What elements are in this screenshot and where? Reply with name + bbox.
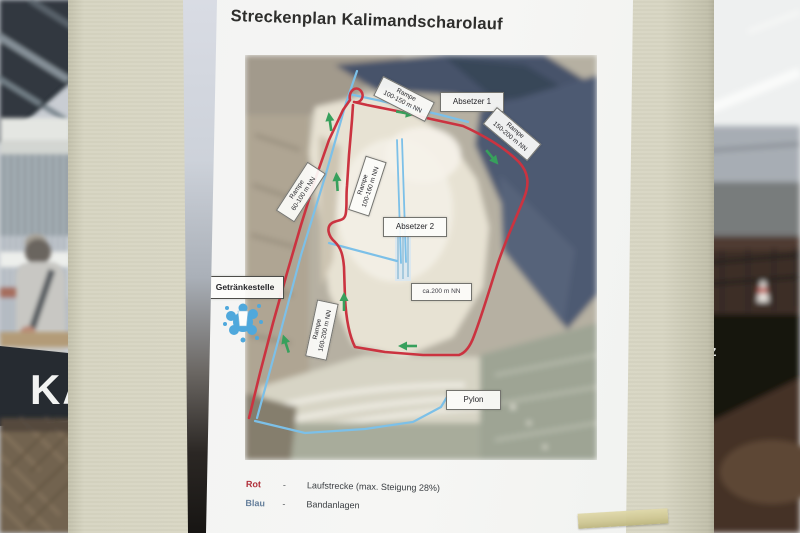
- map-legend: Rot - Laufstrecke (max. Steigung 28%) Bl…: [245, 479, 440, 521]
- cup-icon: [238, 311, 248, 326]
- label-ca-200-m-nn: ca.200 m NN: [411, 283, 472, 301]
- legend-row-red: Rot - Laufstrecke (max. Steigung 28%): [246, 479, 440, 493]
- legend-dash: -: [282, 499, 306, 510]
- legend-key-blau: Blau: [245, 498, 282, 509]
- paving: [0, 418, 74, 533]
- legend-key-rot: Rot: [246, 479, 283, 490]
- water-splash-icon: [218, 296, 268, 344]
- photo-scene: KA z: [0, 0, 800, 533]
- legend-desc-bandanlagen: Bandanlagen: [306, 499, 359, 510]
- absetzer2-structure: [395, 233, 411, 281]
- label-pylon: Pylon: [446, 390, 501, 410]
- legend-dash: -: [283, 480, 307, 491]
- legend-row-blue: Blau - Bandanlagen: [245, 498, 439, 512]
- label-absetzer-2: Absetzer 2: [383, 217, 447, 237]
- legend-desc-laufstrecke: Laufstrecke (max. Steigung 28%): [307, 480, 440, 493]
- poster-title: Streckenplan Kalimandscharolauf: [230, 7, 546, 36]
